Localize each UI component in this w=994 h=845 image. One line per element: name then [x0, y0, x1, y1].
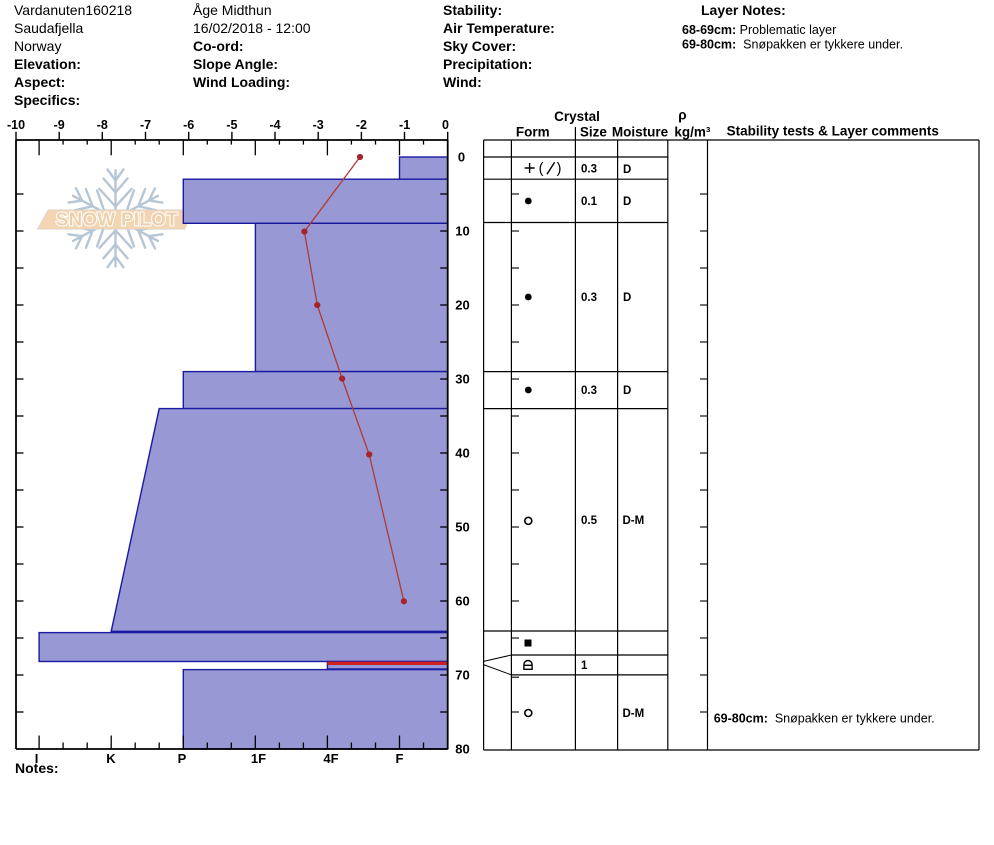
svg-text:-3: -3: [313, 118, 324, 132]
svg-text:-6: -6: [183, 118, 194, 132]
svg-text:Size: Size: [580, 125, 608, 140]
svg-text:D-M: D-M: [623, 515, 645, 527]
svg-text:D-M: D-M: [623, 708, 645, 720]
svg-text:D: D: [623, 164, 631, 176]
svg-text:69-80cm: Snøpakken er tykkere: 69-80cm: Snøpakken er tykkere under.: [682, 38, 903, 52]
svg-text:0.1: 0.1: [581, 196, 598, 208]
svg-text:SNOW PILOT: SNOW PILOT: [56, 209, 178, 230]
svg-text:50: 50: [455, 520, 469, 535]
svg-text:Co-ord:: Co-ord:: [193, 38, 244, 54]
svg-text:Stability tests & Layer commen: Stability tests & Layer comments: [727, 124, 939, 139]
svg-text:ρ: ρ: [678, 108, 686, 123]
svg-text:70: 70: [455, 668, 469, 683]
svg-text:Wind:: Wind:: [443, 74, 482, 90]
svg-text:Wind Loading:: Wind Loading:: [193, 74, 290, 90]
svg-text:0: 0: [458, 150, 465, 165]
svg-text:69-80cm: Snøpakken er tykkere: 69-80cm: Snøpakken er tykkere under.: [714, 712, 935, 726]
svg-text:16/02/2018 - 12:00: 16/02/2018 - 12:00: [193, 20, 311, 36]
svg-text:-4: -4: [269, 118, 280, 132]
svg-text:0.3: 0.3: [581, 292, 597, 304]
svg-text:20: 20: [455, 298, 469, 313]
svg-text:P: P: [178, 751, 187, 766]
svg-text:40: 40: [455, 446, 469, 461]
svg-text:Saudafjella: Saudafjella: [14, 20, 83, 36]
svg-text:1F: 1F: [251, 751, 266, 766]
svg-text:0.3: 0.3: [581, 385, 597, 397]
svg-text:Elevation:: Elevation:: [14, 56, 81, 72]
svg-text:-9: -9: [54, 118, 65, 132]
svg-text:80: 80: [455, 742, 469, 757]
svg-text:Åge Midthun: Åge Midthun: [193, 2, 272, 18]
svg-text:Sky Cover:: Sky Cover:: [443, 38, 516, 54]
svg-text:Notes:: Notes:: [15, 760, 59, 776]
svg-text:Crystal: Crystal: [554, 109, 600, 124]
svg-text:D: D: [623, 385, 631, 397]
svg-text:K: K: [106, 751, 116, 766]
svg-text:60: 60: [455, 594, 469, 609]
svg-text:-8: -8: [97, 118, 108, 132]
svg-text:0.3: 0.3: [581, 164, 597, 176]
svg-text:-1: -1: [399, 118, 410, 132]
svg-text:68-69cm: Problematic layer: 68-69cm: Problematic layer: [682, 23, 836, 37]
svg-text:D: D: [623, 196, 631, 208]
svg-text:Norway: Norway: [14, 38, 61, 54]
svg-text:0.5: 0.5: [581, 515, 598, 527]
svg-text:1: 1: [581, 660, 588, 672]
svg-text:-10: -10: [7, 118, 25, 132]
svg-text:Form: Form: [516, 125, 550, 140]
svg-text:Slope Angle:: Slope Angle:: [193, 56, 278, 72]
svg-text:Air Temperature:: Air Temperature:: [443, 20, 555, 36]
svg-text:): ): [557, 161, 562, 177]
svg-text:-5: -5: [226, 118, 237, 132]
svg-text:kg/m³: kg/m³: [674, 125, 711, 140]
svg-text:-2: -2: [356, 118, 367, 132]
svg-text:Moisture: Moisture: [612, 125, 669, 140]
svg-text:D: D: [623, 292, 631, 304]
svg-text:Vardanuten160218: Vardanuten160218: [14, 2, 132, 18]
svg-text:F: F: [396, 751, 404, 766]
svg-text:10: 10: [455, 224, 469, 239]
svg-text:0: 0: [442, 118, 449, 132]
svg-text:Precipitation:: Precipitation:: [443, 56, 532, 72]
svg-text:-7: -7: [140, 118, 151, 132]
svg-text:(: (: [539, 161, 544, 177]
svg-text:Specifics:: Specifics:: [14, 92, 80, 108]
svg-text:Stability:: Stability:: [443, 2, 502, 18]
svg-text:4F: 4F: [323, 751, 338, 766]
svg-text:30: 30: [455, 372, 469, 387]
svg-text:Aspect:: Aspect:: [14, 74, 65, 90]
svg-text:Layer Notes:: Layer Notes:: [701, 2, 786, 18]
